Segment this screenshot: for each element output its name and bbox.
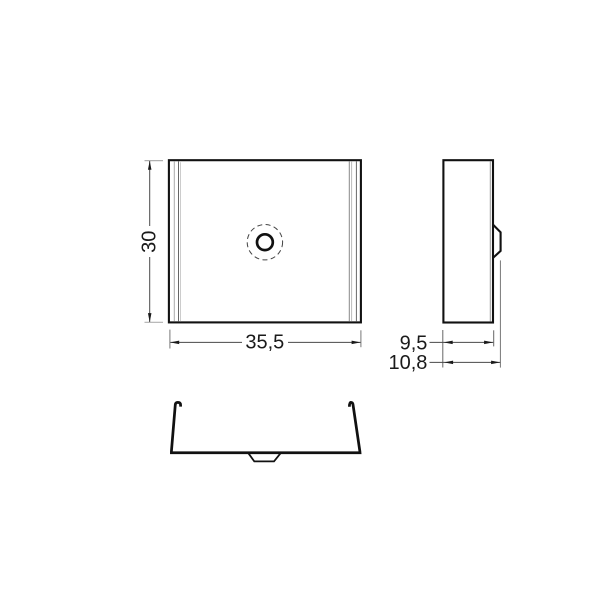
svg-text:35,5: 35,5 [245,331,284,353]
svg-text:30: 30 [139,231,161,253]
svg-text:10,8: 10,8 [388,352,427,374]
